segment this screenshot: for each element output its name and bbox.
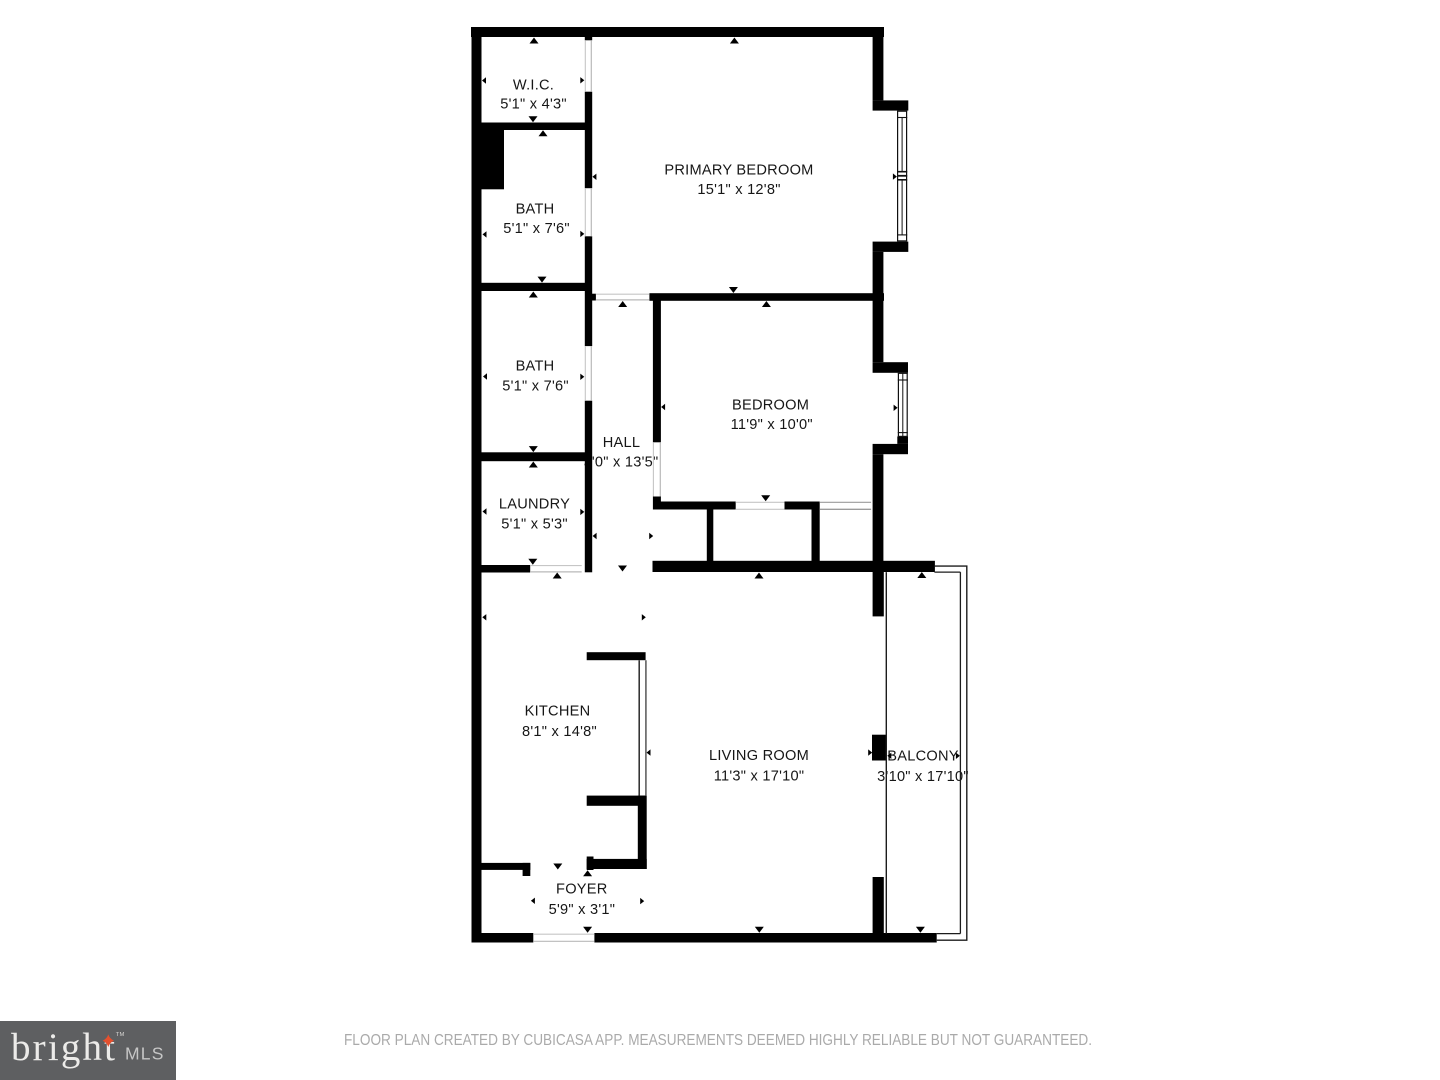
svg-text:BEDROOM: BEDROOM: [732, 397, 809, 413]
svg-text:11'9" x 10'0": 11'9" x 10'0": [731, 417, 813, 433]
svg-text:3'0" x 13'5": 3'0" x 13'5": [584, 454, 659, 470]
svg-text:5'1" x 5'3": 5'1" x 5'3": [501, 517, 568, 533]
svg-text:5'9" x 3'1": 5'9" x 3'1": [549, 902, 616, 918]
svg-text:5'1" x 7'6": 5'1" x 7'6": [503, 221, 570, 237]
svg-text:11'3" x 17'10": 11'3" x 17'10": [714, 768, 805, 784]
svg-text:FOYER: FOYER: [556, 882, 608, 898]
svg-text:BATH: BATH: [516, 202, 555, 218]
svg-text:TM: TM: [116, 1032, 125, 1038]
svg-text:PRIMARY BEDROOM: PRIMARY BEDROOM: [664, 162, 813, 178]
svg-text:MLS: MLS: [125, 1044, 165, 1064]
svg-text:KITCHEN: KITCHEN: [525, 703, 591, 719]
svg-text:5'1" x 7'6": 5'1" x 7'6": [502, 379, 569, 395]
svg-text:LAUNDRY: LAUNDRY: [499, 497, 570, 513]
svg-text:BATH: BATH: [516, 359, 555, 375]
svg-text:15'1" x 12'8": 15'1" x 12'8": [697, 182, 780, 198]
svg-text:FLOOR PLAN CREATED BY CUBICASA: FLOOR PLAN CREATED BY CUBICASA APP. MEAS…: [344, 1032, 1092, 1049]
svg-text:bright: bright: [11, 1026, 115, 1069]
svg-text:3'10" x 17'10": 3'10" x 17'10": [877, 769, 969, 785]
svg-text:5'1" x 4'3": 5'1" x 4'3": [500, 97, 567, 113]
svg-text:8'1" x 14'8": 8'1" x 14'8": [522, 724, 597, 740]
svg-text:HALL: HALL: [603, 435, 641, 451]
svg-text:LIVING ROOM: LIVING ROOM: [709, 748, 809, 764]
svg-text:BALCONY: BALCONY: [887, 749, 959, 765]
svg-text:W.I.C.: W.I.C.: [513, 77, 554, 93]
